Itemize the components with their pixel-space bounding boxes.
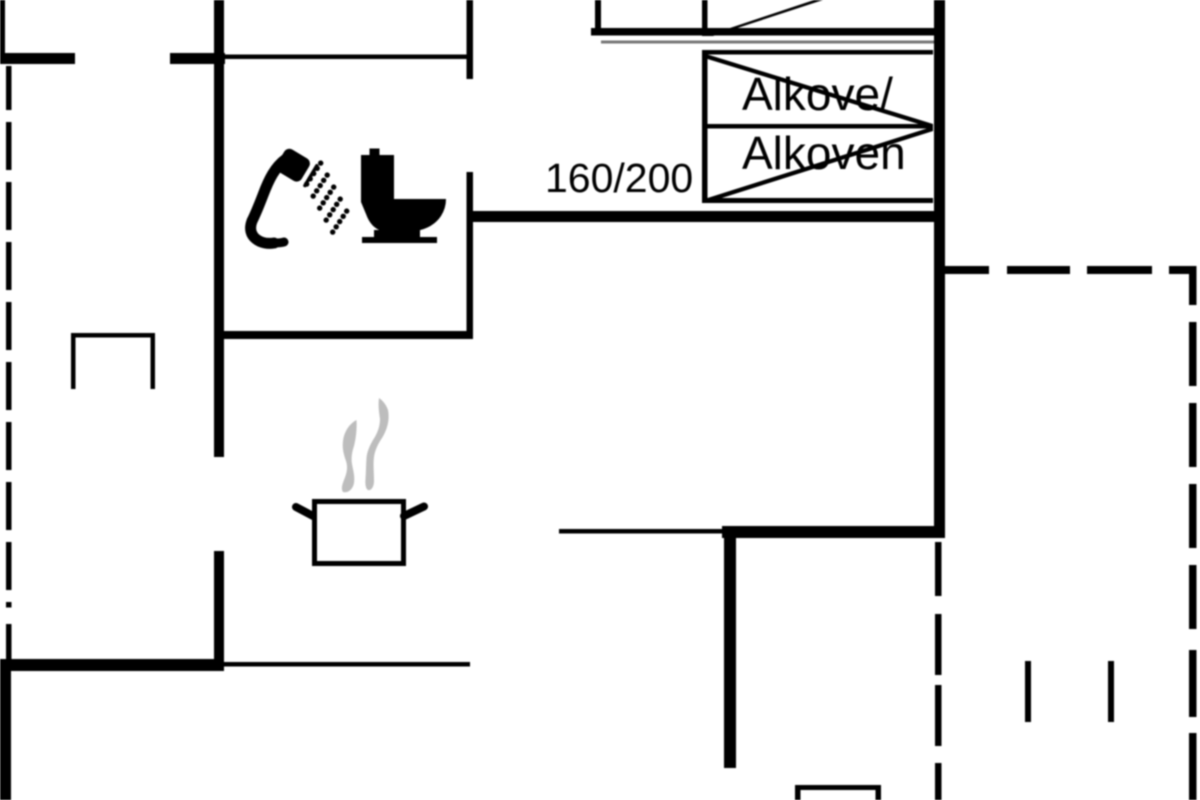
svg-text:Alkove/: Alkove/: [742, 68, 893, 120]
svg-text:Alkoven: Alkoven: [742, 127, 906, 179]
svg-text:160/200: 160/200: [545, 155, 693, 201]
